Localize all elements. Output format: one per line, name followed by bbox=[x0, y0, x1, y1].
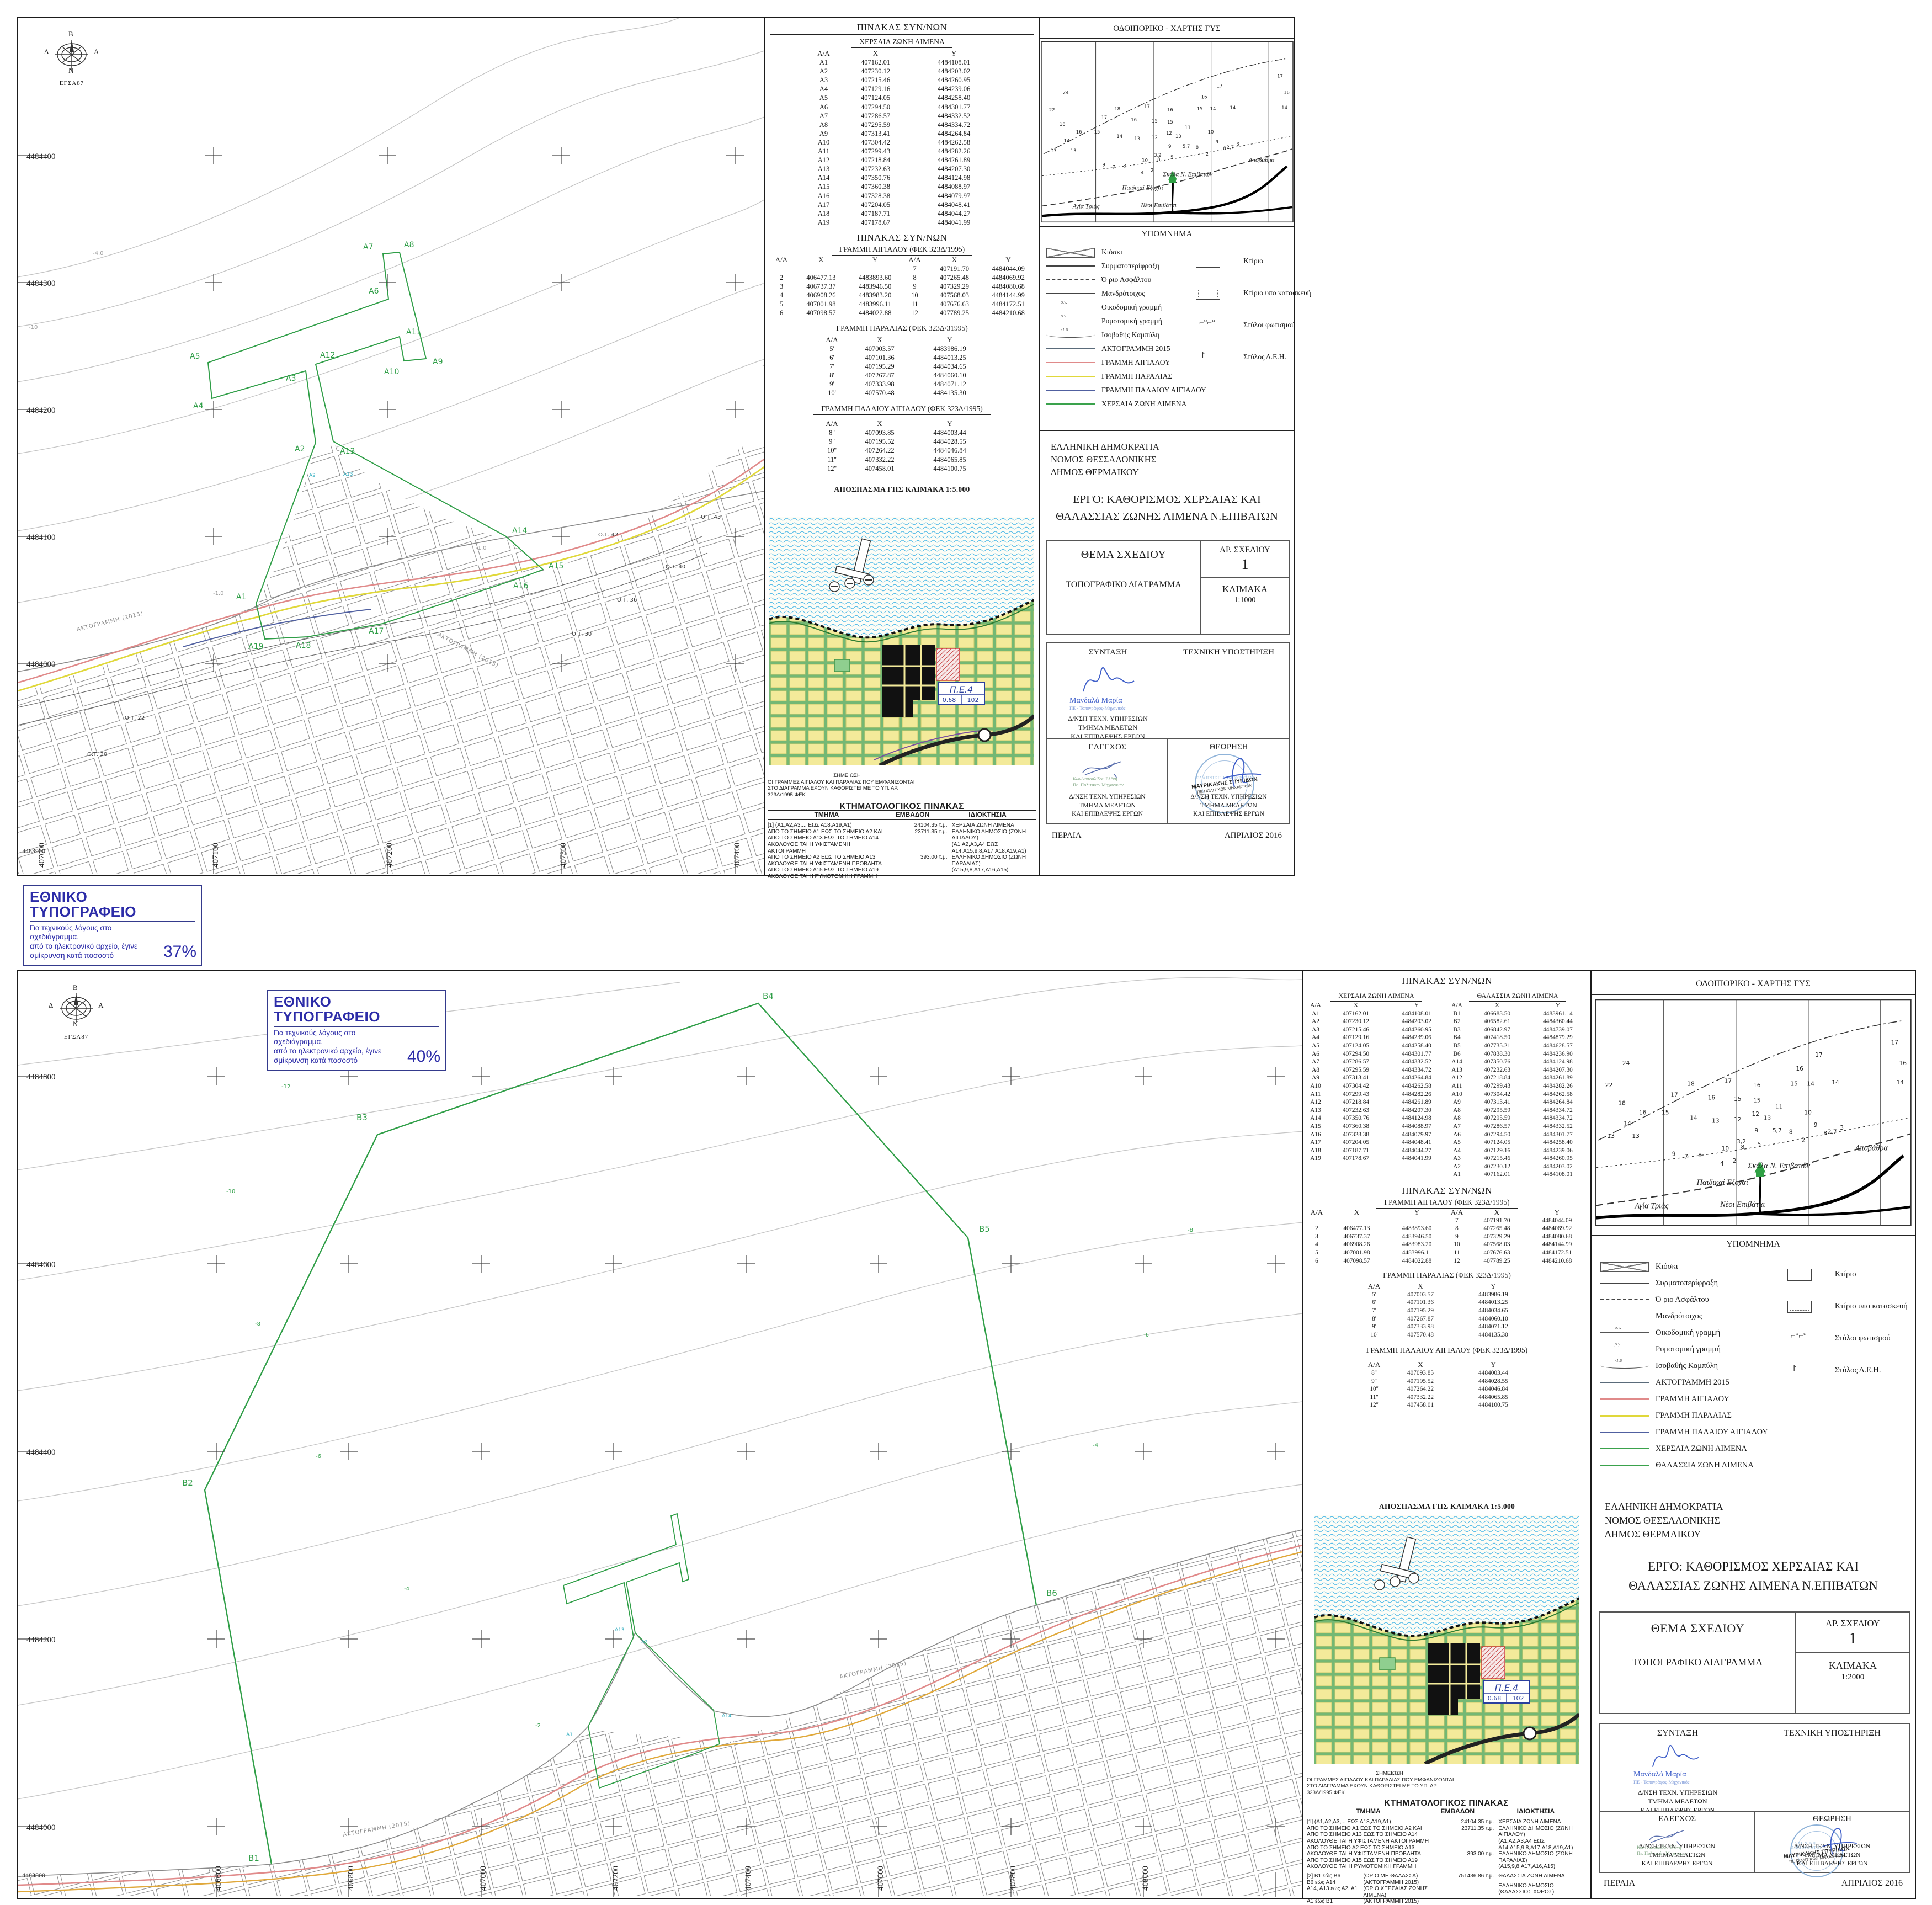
coord-row: Α8407295.594484334.72 bbox=[1447, 1106, 1588, 1115]
gps-inset-map: Π.Ε.4 0.68 102 bbox=[769, 517, 1034, 765]
map-label: -4 bbox=[404, 1586, 409, 1592]
coord-row: 7'407195.294484034.65 bbox=[1364, 1307, 1530, 1315]
ktima-row-2: [2] Β1 εώς Β6(ΟΡΙΟ ΜΕ ΘΑΛΑΣΣΑ)Β6 εώς Α14… bbox=[1307, 1873, 1586, 1905]
syntaxi-box: ΣΥΝΤΑΞΗ ΤΕΧΝΙΚΗ ΥΠΟΣΤΗΡΙΞΗ Μανδαλά Μαρία… bbox=[1046, 642, 1290, 824]
map-label: 8 bbox=[1823, 1130, 1827, 1137]
legend-swatch bbox=[1046, 262, 1095, 270]
map-label: 5 bbox=[1757, 1141, 1761, 1148]
map-label: Α6 bbox=[369, 287, 379, 296]
coord-row: Α8407295.594484334.72 bbox=[1447, 1114, 1588, 1122]
chersaia-title: ΧΕΡΣΑΙΑ ΖΩΝΗ ΛΙΜΕΝΑ bbox=[851, 38, 952, 48]
legend-item: ο.γ. Οικοδομική γραμμή bbox=[1597, 1324, 1776, 1341]
map-label: Α2 bbox=[295, 445, 305, 454]
map-label: -1.0 bbox=[213, 590, 224, 597]
col-x: Χ bbox=[837, 49, 915, 58]
coord-row: Β3406842.974484739.07 bbox=[1447, 1026, 1588, 1034]
map-label: -10 bbox=[226, 1189, 235, 1195]
coord-row: Α2407230.124484203.02 bbox=[811, 67, 993, 76]
tmima-line: Α1 εώς Β1(ΑΚΤΟΓΡΑΜΜΗ 2015) bbox=[1307, 1898, 1430, 1905]
coord-row: Α8407295.594484334.72 bbox=[811, 120, 993, 129]
col-y: Υ bbox=[915, 49, 993, 58]
coord-row: 8407265.484484069.92 bbox=[902, 273, 1036, 282]
tmima-line: ΑΠΟ ΤΟ ΣΗΜΕΙΟ Α13 ΕΩΣ ΤΟ ΣΗΜΕΙΟ Α14 bbox=[768, 835, 886, 842]
footer-place: ΠΕΡΑΙΑ bbox=[1604, 1879, 1635, 1888]
legend-swatch bbox=[1046, 248, 1095, 257]
gps-inset-map: Π.Ε.4 0.68 102 bbox=[1314, 1515, 1579, 1764]
map-label: 14 bbox=[1116, 134, 1122, 139]
legend-item: ΑΚΤΟΓΡΑΜΜΗ 2015 bbox=[1043, 342, 1185, 355]
coord-row: 11''407332.224484065.85 bbox=[1364, 1393, 1530, 1402]
elegxos-stamp-text: Κων/νοπουλίδου Ελένη Πε. Πολιτικών Μηχαν… bbox=[1073, 776, 1124, 788]
coord-row: Α18407187.714484044.27 bbox=[811, 209, 993, 218]
coord-row: Α11407299.434484282.26 bbox=[1306, 1090, 1447, 1099]
coord-row: Α14407350.764484124.98 bbox=[1306, 1114, 1447, 1122]
map-label: Α2 bbox=[309, 473, 316, 478]
legend-swatch bbox=[1046, 289, 1095, 298]
coord-row: Α4407129.164484239.06 bbox=[811, 84, 993, 93]
tmima-line: ΑΚΟΛΟΥΘΕΙΤΑΙ Η ΥΦΙΣΤΑΜΕΝΗ ΑΚΤΟΓΡΑΜΜΗ bbox=[1307, 1838, 1430, 1845]
emvadon-entry: 24104.35 τ.μ. ΧΕΡΣΑΙΑ ΖΩΝΗ ΛΙΜΕΝΑ bbox=[886, 822, 1036, 829]
map-label: 9 bbox=[1672, 1151, 1676, 1158]
map-label: Ο.Τ. 30 bbox=[572, 631, 592, 637]
map-label: Α17 bbox=[369, 627, 384, 636]
coord-row: 5407001.984483996.11 bbox=[1307, 1249, 1447, 1257]
sheet1-map: Α5Α4Α3Α12Α6Α7Α8Α11Α9Α10Α2Α13Α14Α15Α16Α17… bbox=[18, 18, 764, 874]
map-label: 9 bbox=[1216, 139, 1218, 145]
emvadon-entry: 393.00 τ.μ. ΕΛΛΗΝΙΚΟ ΔΗΜΟΣΙΟ (ΖΩΝΗ ΠΑΡΑΛ… bbox=[886, 854, 1036, 874]
coord-row: Α17407204.054484048.41 bbox=[811, 200, 993, 209]
emvadon-entry: 24104.35 τ.μ. ΧΕΡΣΑΙΑ ΖΩΝΗ ΛΙΜΕΝΑ bbox=[1430, 1819, 1586, 1826]
coord-row: Α9407313.414484264.84 bbox=[811, 129, 993, 138]
map-label: -8 bbox=[1188, 1227, 1193, 1233]
svg-text:Π.Ε.4: Π.Ε.4 bbox=[1495, 1683, 1519, 1693]
palaiou-title: ΓΡΑΜΜΗ ΠΑΛΑΙΟΥ ΑΙΓΙΑΛΟΥ (ΦΕΚ 323Δ/1995) bbox=[1359, 1346, 1536, 1356]
map-label: 407100 bbox=[211, 843, 220, 868]
coord-row: Α4407129.164484239.06 bbox=[1447, 1147, 1588, 1155]
map-label: 12 bbox=[1734, 1116, 1741, 1123]
coord-row: 7407191.704484044.09 bbox=[1447, 1217, 1587, 1225]
legend-item: ο.γ. Οικοδομική γραμμή bbox=[1043, 300, 1185, 314]
compass-s: Ν bbox=[68, 66, 73, 75]
coord-row: Α6407294.504484301.77 bbox=[811, 103, 993, 111]
coord-row: Α1407162.014484108.01 bbox=[1447, 1170, 1588, 1179]
coord-row: 11407676.634484172.51 bbox=[902, 300, 1036, 308]
map-label: -6 bbox=[316, 1454, 321, 1460]
coord-row: 12''407458.014484100.75 bbox=[819, 464, 985, 473]
map-label: Α13 bbox=[343, 472, 353, 477]
signature-scribble bbox=[1644, 1739, 1711, 1770]
tmima-line: ΑΠΟ ΤΟ ΣΗΜΕΙΟ Α2 ΕΩΣ ΤΟ ΣΗΜΕΙΟ Α13 bbox=[1307, 1845, 1430, 1851]
legend-item: ↾ Στύλος Δ.Ε.Η. bbox=[1776, 1354, 1912, 1386]
footer-date: ΑΠΡΙΛΙΟΣ 2016 bbox=[1225, 831, 1282, 840]
legend-swatch bbox=[1046, 275, 1095, 284]
map-label: 2 bbox=[1151, 168, 1153, 173]
map-label: 10 bbox=[1804, 1110, 1812, 1116]
map-label: Παιδικαί Εξοχαί bbox=[1696, 1178, 1749, 1187]
map-label: Α9 bbox=[433, 358, 443, 366]
legend-swatch: ο.γ. bbox=[1046, 303, 1095, 312]
legend-item: ΓΡΑΜΜΗ ΑΙΓΙΑΛΟΥ bbox=[1597, 1391, 1776, 1407]
coord-row: 6407098.574484022.88 bbox=[1307, 1257, 1447, 1265]
thewrisi-cell: ΘΕΩΡΗΣΗ ΕΛΛΗΝΙΚΗ ΔΗΜΟΚΡΑΤΙΑ ΜΑΥΡΙΚΑΚΗΣ Σ… bbox=[1168, 739, 1289, 823]
coord-row: Α16407328.384484079.97 bbox=[811, 191, 993, 200]
thema-value: ΤΟΠΟΓΡΑΦΙΚΟ ΔΙΑΓΡΑΜΜΑ bbox=[1600, 1657, 1795, 1668]
coord-row: 12407789.254484210.68 bbox=[1447, 1257, 1587, 1265]
legend-item: Μανδρότοιχος bbox=[1043, 286, 1185, 300]
gys-title: ΟΔΟΙΠΟΡΙΚΟ - ΧΑΡΤΗΣ ΓΥΣ bbox=[1040, 24, 1294, 34]
svg-text:102: 102 bbox=[967, 696, 979, 704]
paralias-title: ΓΡΑΜΜΗ ΠΑΡΑΛΙΑΣ (ΦΕΚ 323Δ/1995) bbox=[1375, 1271, 1519, 1281]
coord-row: Α9407313.414484264.84 bbox=[1447, 1098, 1588, 1106]
map-label: 407600 bbox=[876, 1866, 885, 1891]
map-label: 9 bbox=[1103, 162, 1105, 168]
reduction-stamp-37: ΕΘΝΙΚΟ ΤΥΠΟΓΡΑΦΕΙΟ Για τεχνικούς λόγους … bbox=[23, 885, 202, 966]
coord-row: 9407329.294484080.68 bbox=[902, 282, 1036, 291]
tmima-line: ΑΠΟ ΤΟ ΣΗΜΕΙΟ Α1 ΕΩΣ ΤΟ ΣΗΜΕΙΟ Α2 ΚΑΙ bbox=[1307, 1826, 1430, 1832]
tmima-line: Β6 εώς Α14(ΑΚΤΟΓΡΑΜΜΗ 2015) bbox=[1307, 1880, 1430, 1886]
map-label: 17 bbox=[1891, 1039, 1898, 1046]
legend-swatch bbox=[1046, 358, 1095, 367]
legend-item: Κιόσκι bbox=[1597, 1258, 1776, 1275]
map-label: 408000 bbox=[1141, 1866, 1150, 1891]
map-label: Ο.Τ. 43 bbox=[701, 514, 721, 520]
legend-item: ΧΕΡΣΑΙΑ ΖΩΝΗ ΛΙΜΕΝΑ bbox=[1043, 397, 1185, 411]
datum-label: ΕΓΣΑ87 bbox=[50, 1034, 103, 1040]
svg-text:102: 102 bbox=[1513, 1695, 1524, 1702]
map-label: Σκάλα Ν. Επιβατών bbox=[1162, 172, 1213, 178]
map-label: 4484400 bbox=[26, 1448, 56, 1457]
agency-block: ΕΛΛΗΝΙΚΗ ΔΗΜΟΚΡΑΤΙΑ ΝΟΜΟΣ ΘΕΣΣΑΛΟΝΙΚΗΣ Δ… bbox=[1040, 440, 1159, 478]
datum-label: ΕΓΣΑ87 bbox=[45, 80, 98, 87]
map-label: 4 bbox=[1720, 1161, 1724, 1167]
coord-row: Α14407350.764484124.98 bbox=[1447, 1058, 1588, 1066]
legend-item: ΧΕΡΣΑΙΑ ΖΩΝΗ ΛΙΜΕΝΑ bbox=[1597, 1440, 1776, 1457]
legend-item: Συρματοπερίφραξη bbox=[1043, 259, 1185, 273]
legend-item: ρ.γ. Ρυμοτομική γραμμή bbox=[1043, 314, 1185, 328]
coord-row: Α13407232.634484207.30 bbox=[1447, 1066, 1588, 1074]
legend-swatch bbox=[1600, 1378, 1649, 1387]
compass-rose: Β Ν Δ Α ΕΓΣΑ87 bbox=[50, 987, 103, 1040]
legend-item: Κιόσκι bbox=[1043, 245, 1185, 259]
map-label: Αποβάθρα bbox=[1855, 1144, 1888, 1153]
map-label: Ο.Τ. 42 bbox=[598, 532, 618, 538]
map-label: 16 bbox=[1899, 1060, 1907, 1067]
legend-swatch: ↾ bbox=[1188, 353, 1237, 361]
map-label: -1.0 bbox=[476, 545, 487, 551]
map-label: Β6 bbox=[1046, 1588, 1057, 1598]
map-label: 8 bbox=[1123, 163, 1126, 169]
legend-item: Κτίριο bbox=[1185, 245, 1292, 277]
ar-sxediou-value: 1 bbox=[1796, 1630, 1909, 1648]
map-label: 13 bbox=[1632, 1133, 1639, 1140]
emvadon-entry: 23711.35 τ.μ. ΕΛΛΗΝΙΚΟ ΔΗΜΟΣΙΟ (ΖΩΝΗ ΑΙΓ… bbox=[1430, 1826, 1586, 1851]
coord-row: Α7407286.574484332.52 bbox=[1447, 1122, 1588, 1131]
sheet1-tables-panel: ΠΙΝΑΚΑΣ ΣΥΝ/ΝΩΝ ΧΕΡΣΑΙΑ ΖΩΝΗ ΛΙΜΕΝΑ Α/Α … bbox=[764, 18, 1039, 875]
map-label: 10 bbox=[1722, 1146, 1729, 1152]
map-label: 14 bbox=[1210, 106, 1216, 111]
map-label: 2 bbox=[1733, 1158, 1737, 1164]
map-label: 14 bbox=[1624, 1121, 1631, 1127]
map-label: Α14 bbox=[722, 1714, 732, 1719]
coord-row: 7407191.704484044.09 bbox=[902, 264, 1036, 273]
ar-sxediou-label: ΑΡ. ΣΧΕΔΙΟΥ bbox=[1201, 545, 1289, 555]
svg-text:Π.Ε.4: Π.Ε.4 bbox=[950, 684, 973, 695]
coord-row: Α7407286.574484332.52 bbox=[1306, 1058, 1447, 1066]
legend-item: Κτίριο υπο κατασκευή bbox=[1185, 277, 1292, 309]
legend-item: ⌐°⌐° Στύλοι φωτισμού bbox=[1185, 309, 1292, 341]
coord-row: 8''407093.854484003.44 bbox=[819, 428, 985, 437]
coord-row: 11''407332.224484065.85 bbox=[819, 455, 985, 464]
map-label: 14 bbox=[1064, 138, 1070, 143]
legend-item: ⌐°⌐° Στύλοι φωτισμού bbox=[1776, 1322, 1912, 1354]
chersaia-table: Α/ΑΧΥ Α1407162.014484108.01Α2407230.1244… bbox=[1306, 1002, 1447, 1163]
palaiou-title: ΓΡΑΜΜΗ ΠΑΛΑΙΟΥ ΑΙΓΙΑΛΟΥ (ΦΕΚ 323Δ/1995) bbox=[813, 405, 991, 415]
map-label: Α1 bbox=[566, 1732, 573, 1738]
thema-box: ΘΕΜΑ ΣΧΕΔΙΟΥ ΤΟΠΟΓΡΑΦΙΚΟ ΔΙΑΓΡΑΜΜΑ ΑΡ. Σ… bbox=[1599, 1611, 1910, 1714]
ar-sxediou-label: ΑΡ. ΣΧΕΔΙΟΥ bbox=[1796, 1618, 1909, 1629]
map-label: 18 bbox=[1114, 106, 1120, 111]
compass-rose: Β Ν Δ Α ΕΓΣΑ87 bbox=[45, 33, 98, 87]
project-title: ΕΡΓΟ: ΚΑΘΟΡΙΣΜΟΣ ΧΕΡΣΑΙΑΣ ΚΑΙ ΘΑΛΑΣΣΙΑΣ … bbox=[1040, 491, 1294, 525]
compass-w: Δ bbox=[44, 47, 49, 56]
legend-item: ΓΡΑΜΜΗ ΠΑΛΑΙΟΥ ΑΙΓΙΑΛΟΥ bbox=[1597, 1424, 1776, 1440]
coord-row: 8407265.484484069.92 bbox=[1447, 1225, 1587, 1233]
coord-row: Α15407360.384484088.97 bbox=[811, 182, 993, 191]
footer-date: ΑΠΡΙΛΙΟΣ 2016 bbox=[1841, 1879, 1903, 1888]
aigialou-title: ΓΡΑΜΜΗ ΑΙΓΙΑΛΟΥ (ΦΕΚ 323Δ/1995) bbox=[832, 245, 972, 256]
tmima-line: ΑΚΟΛΟΥΘΕΙΤΑΙ Η ΥΦΙΣΤΑΜΕΝΗ ΑΚΤΟΓΡΑΜΜΗ bbox=[768, 842, 886, 854]
map-label: 16 bbox=[1201, 94, 1207, 99]
map-label: Ο.Τ. 22 bbox=[125, 715, 145, 721]
map-label: 407400 bbox=[744, 1866, 753, 1891]
map-label: 5 bbox=[1170, 155, 1173, 160]
ypomnima-title: ΥΠΟΜΝΗΜΑ bbox=[1040, 230, 1294, 239]
legend-swatch bbox=[1780, 1302, 1828, 1311]
map-label: 16 bbox=[1284, 89, 1290, 95]
palaiou-table: Α/ΑΧΥ 8''407093.854484003.449''407195.52… bbox=[1364, 1361, 1530, 1409]
thewrisi-signature bbox=[1218, 751, 1262, 789]
ktimatologikos-pinakas: ΚΤΗΜΑΤΟΛΟΓΙΚΟΣ ΠΙΝΑΚΑΣ ΤΜΗΜΑ ΕΜΒΑΔΟΝ ΙΔΙ… bbox=[768, 803, 1036, 880]
map-label: Β5 bbox=[979, 1224, 990, 1234]
map-label: Α3 bbox=[286, 374, 296, 383]
map-label: Α18 bbox=[296, 641, 311, 650]
paralias-title: ΓΡΑΜΜΗ ΠΑΡΑΛΙΑΣ (ΦΕΚ 323Δ/31995) bbox=[828, 324, 975, 334]
map-label: Α14 bbox=[512, 526, 527, 535]
coord-row: Β4407418.504484879.29 bbox=[1447, 1034, 1588, 1042]
map-label: 12 bbox=[1752, 1111, 1759, 1118]
reduction-stamp-40: ΕΘΝΙΚΟ ΤΥΠΟΓΡΑΦΕΙΟ Για τεχνικούς λόγους … bbox=[267, 990, 446, 1071]
coord-row: 10'407570.484484135.30 bbox=[819, 389, 985, 397]
project-title: ΕΡΓΟ: ΚΑΘΟΡΙΣΜΟΣ ΧΕΡΣΑΙΑΣ ΚΑΙ ΘΑΛΑΣΣΙΑΣ … bbox=[1592, 1557, 1915, 1595]
map-label: 4484000 bbox=[26, 660, 56, 669]
aigialou-table: Α/ΑΧΥ 2406477.134483893.603406737.374483… bbox=[1303, 1209, 1590, 1265]
legend-item: Κτίριο υπο κατασκευή bbox=[1776, 1290, 1912, 1322]
emvadon-entry: 23711.35 τ.μ. ΕΛΛΗΝΙΚΟ ΔΗΜΟΣΙΟ (ΖΩΝΗ ΑΙΓ… bbox=[886, 829, 1036, 854]
map-label: 407800 bbox=[1009, 1866, 1018, 1891]
coord-row: 6'407101.364484013.25 bbox=[819, 353, 985, 362]
map-label: 4484200 bbox=[26, 1636, 56, 1645]
elegxos-signature bbox=[1081, 756, 1130, 778]
legend-swatch bbox=[1600, 1312, 1649, 1321]
map-label: 17 bbox=[1815, 1052, 1822, 1058]
map-label: 10 bbox=[1142, 158, 1148, 163]
elegxos-label: ΕΛΕΓΧΟΣ bbox=[1600, 1814, 1754, 1824]
coord-row: Α5407124.054484258.40 bbox=[1306, 1042, 1447, 1050]
map-label: -4.0 bbox=[93, 251, 104, 257]
coord-row: 12407789.254484210.68 bbox=[902, 308, 1036, 317]
aigialou-title: ΓΡΑΜΜΗ ΑΙΓΙΑΛΟΥ (ΦΕΚ 323Δ/1995) bbox=[1376, 1198, 1517, 1209]
coord-row: Α1407162.014484108.01 bbox=[811, 58, 993, 67]
map-label: 2 bbox=[1206, 151, 1209, 157]
legend-swatch bbox=[1188, 257, 1237, 265]
coord-row: Α9407313.414484264.84 bbox=[1306, 1074, 1447, 1082]
map-label: 13 bbox=[1071, 148, 1077, 153]
map-label: 8 bbox=[1223, 146, 1226, 151]
map-label: Α16 bbox=[513, 582, 528, 590]
coord-row: 8'407267.874484060.10 bbox=[819, 371, 985, 380]
legend-item: -1.0 Ισοβαθής Καμπύλη bbox=[1043, 328, 1185, 342]
legend-swatch bbox=[1600, 1262, 1649, 1271]
legend-swatch: ο.γ. bbox=[1600, 1328, 1649, 1337]
legend-item: ↾ Στύλος Δ.Ε.Η. bbox=[1185, 341, 1292, 373]
elegxos-cell: ΕΛΕΓΧΟΣ Κων/νοπουλίδου Ελένη Πε. Πολιτικ… bbox=[1047, 739, 1168, 823]
elegxos-label: ΕΛΕΓΧΟΣ bbox=[1047, 743, 1167, 752]
footer: ΠΕΡΑΙΑ ΑΠΡΙΛΙΟΣ 2016 bbox=[1040, 831, 1294, 840]
legend-swatch: ρ.γ. bbox=[1046, 317, 1095, 326]
col-aa: Α/Α bbox=[811, 49, 837, 58]
map-label: 3 bbox=[1840, 1125, 1844, 1131]
map-label: 4484100 bbox=[26, 533, 56, 542]
coord-row: 6407098.574484022.88 bbox=[769, 308, 902, 317]
compass-e: Α bbox=[94, 47, 99, 56]
coord-row: 3406737.374483946.50 bbox=[769, 282, 902, 291]
reduction-percent: 40% bbox=[407, 1046, 440, 1067]
pinakas-title-2: ΠΙΝΑΚΑΣ ΣΥΝ/ΝΩΝ bbox=[1303, 1185, 1590, 1196]
coord-row: 8''407093.854484003.44 bbox=[1364, 1369, 1530, 1377]
map-label: -4 bbox=[1093, 1443, 1098, 1449]
legend-item: ΓΡΑΜΜΗ ΠΑΡΑΛΙΑΣ bbox=[1043, 369, 1185, 383]
legend-swatch: -1.0 bbox=[1046, 331, 1095, 339]
coord-row: Α13407232.634484207.30 bbox=[811, 164, 993, 173]
coord-row: 4406908.264483983.20 bbox=[769, 291, 902, 300]
coord-row: 5'407003.574483986.19 bbox=[1364, 1291, 1530, 1299]
map-label: Α4 bbox=[193, 402, 204, 411]
sheet1-titleblock-panel: ΟΔΟΙΠΟΡΙΚΟ - ΧΑΡΤΗΣ ΓΥΣ 2422181614131317… bbox=[1039, 18, 1294, 875]
map-label: 406600 bbox=[214, 1866, 223, 1891]
tmima-line: ΑΚΟΛΟΥΘΕΙΤΑΙ Η ΥΦΙΣΤΑΜΕΝΗ ΠΡΟΒΛΗΤΑ bbox=[768, 861, 886, 868]
map-label: Β2 bbox=[182, 1478, 193, 1488]
map-label: 3,2 bbox=[1737, 1138, 1746, 1145]
map-label: Ο.Τ. 20 bbox=[87, 752, 107, 758]
coord-row: Β6407838.304484236.90 bbox=[1447, 1050, 1588, 1058]
footer: ΠΕΡΑΙΑ ΑΠΡΙΛΙΟΣ 2016 bbox=[1592, 1879, 1915, 1888]
map-label: 10 bbox=[1208, 129, 1214, 135]
legend-item: -1.0 Ισοβαθής Καμπύλη bbox=[1597, 1358, 1776, 1374]
map-label: 12 bbox=[1166, 130, 1172, 136]
map-label: 13 bbox=[1175, 134, 1181, 139]
legend-swatch bbox=[1600, 1395, 1649, 1403]
coord-row: Α12407218.844484261.89 bbox=[1447, 1074, 1588, 1082]
sheet2-titleblock-panel: ΟΔΟΙΠΟΡΙΚΟ - ΧΑΡΤΗΣ ΓΥΣ 2422181614131317… bbox=[1590, 971, 1915, 1898]
map-label: Β3 bbox=[356, 1113, 368, 1122]
paralias-table: Α/ΑΧΥ 5'407003.574483986.196'407101.3644… bbox=[819, 336, 985, 398]
legend-swatch bbox=[1188, 289, 1237, 297]
map-label: 407400 bbox=[733, 843, 742, 868]
gps-caption: ΑΠΟΣΠΑΣΜΑ ΓΠΣ ΚΛΙΜΑΚΑ 1:5.000 bbox=[1303, 1502, 1590, 1511]
map-label: Νέοι Επιβάται bbox=[1140, 202, 1177, 209]
map-label: 17 bbox=[1725, 1078, 1732, 1084]
map-label: 18 bbox=[1618, 1100, 1626, 1106]
coord-row: Α12407218.844484261.89 bbox=[1306, 1098, 1447, 1106]
footer-place: ΠΕΡΑΙΑ bbox=[1052, 831, 1082, 840]
map-label: 2,7 bbox=[1227, 145, 1234, 150]
map-label: 407200 bbox=[611, 1866, 620, 1891]
coord-row: Α6407294.504484301.77 bbox=[1447, 1131, 1588, 1139]
map-label: -2 bbox=[535, 1723, 541, 1729]
signer: Μανδαλά Μαρία ΠΕ - Τοπογράφος-Μηχανικός bbox=[1633, 1770, 1689, 1785]
klimaka-value: 1:2000 bbox=[1796, 1673, 1909, 1682]
map-label: 15 bbox=[1152, 118, 1158, 124]
legend-swatch bbox=[1600, 1428, 1649, 1436]
coord-row: Α2407230.124484203.02 bbox=[1447, 1163, 1588, 1171]
legend-swatch bbox=[1600, 1411, 1649, 1420]
coord-row: 10407568.034484144.99 bbox=[902, 291, 1036, 300]
coord-row: 12''407458.014484100.75 bbox=[1364, 1401, 1530, 1409]
coord-row: Α5407124.054484258.40 bbox=[811, 93, 993, 102]
paralias-table: Α/ΑΧΥ 5'407003.574483986.196'407101.3644… bbox=[1364, 1283, 1530, 1339]
pe4-label: Π.Ε.4 0.68 102 bbox=[1483, 1681, 1530, 1703]
tmima-line: [2] Β1 εώς Β6(ΟΡΙΟ ΜΕ ΘΑΛΑΣΣΑ) bbox=[1307, 1873, 1430, 1880]
map-label: 5,7 bbox=[1773, 1127, 1782, 1134]
coord-row: Β1406683.504483961.14 bbox=[1447, 1010, 1588, 1018]
map-label: Ο.Τ. 40 bbox=[666, 564, 685, 570]
signer: Μανδαλά Μαρία ΠΕ - Τοπογράφος-Μηχανικός bbox=[1069, 696, 1125, 711]
coord-row: Α11407299.434484282.26 bbox=[1447, 1082, 1588, 1090]
map-label: 18 bbox=[1687, 1081, 1695, 1087]
map-label: 15 bbox=[1167, 119, 1173, 125]
coord-row: 8'407267.874484060.10 bbox=[1364, 1315, 1530, 1323]
map-label: 11 bbox=[1185, 125, 1191, 130]
map-label: 16 bbox=[1796, 1066, 1803, 1072]
coord-row: Α3407215.464484260.95 bbox=[1306, 1026, 1447, 1034]
coord-row: Β2406582.614484360.44 bbox=[1447, 1018, 1588, 1026]
coord-row: Α7407286.574484332.52 bbox=[811, 111, 993, 120]
coord-row: 9''407195.524484028.55 bbox=[819, 437, 985, 446]
sheet2-tables-panel: ΠΙΝΑΚΑΣ ΣΥΝ/ΝΩΝ ΧΕΡΣΑΙΑ ΖΩΝΗ ΛΙΜΕΝΑ Α/ΑΧ… bbox=[1302, 971, 1590, 1898]
map-label: 13 bbox=[1764, 1115, 1771, 1122]
coord-row: 11407676.634484172.51 bbox=[1447, 1249, 1587, 1257]
compass-s: Ν bbox=[73, 1020, 78, 1029]
legend-item: ρ.γ. Ρυμοτομική γραμμή bbox=[1597, 1341, 1776, 1358]
map-label: 4483900 bbox=[22, 847, 45, 855]
map-label: Α5 bbox=[190, 352, 200, 361]
map-label: 12 bbox=[1152, 135, 1158, 140]
map-label: Αγία Τριάς bbox=[1072, 203, 1100, 210]
map-label: -10 bbox=[29, 324, 38, 331]
map-label: 16 bbox=[1131, 117, 1137, 123]
map-label: 15 bbox=[1662, 1110, 1669, 1116]
map-label: Α11 bbox=[406, 328, 421, 337]
palaiou-table: Α/ΑΧΥ 8''407093.854484003.449''407195.52… bbox=[819, 419, 985, 473]
map-label: 407000 bbox=[479, 1866, 488, 1891]
map-label: 3,2 bbox=[1154, 152, 1161, 158]
coord-row: 10''407264.224484046.84 bbox=[1364, 1385, 1530, 1393]
map-label: Α10 bbox=[384, 368, 399, 376]
texniki-label: ΤΕΧΝΙΚΗ ΥΠΟΣΤΗΡΙΞΗ bbox=[1755, 1728, 1909, 1738]
coord-row: 5407001.984483996.11 bbox=[769, 300, 902, 308]
thema-label: ΘΕΜΑ ΣΧΕΔΙΟΥ bbox=[1600, 1621, 1795, 1636]
map-label: 2 bbox=[1801, 1137, 1805, 1144]
